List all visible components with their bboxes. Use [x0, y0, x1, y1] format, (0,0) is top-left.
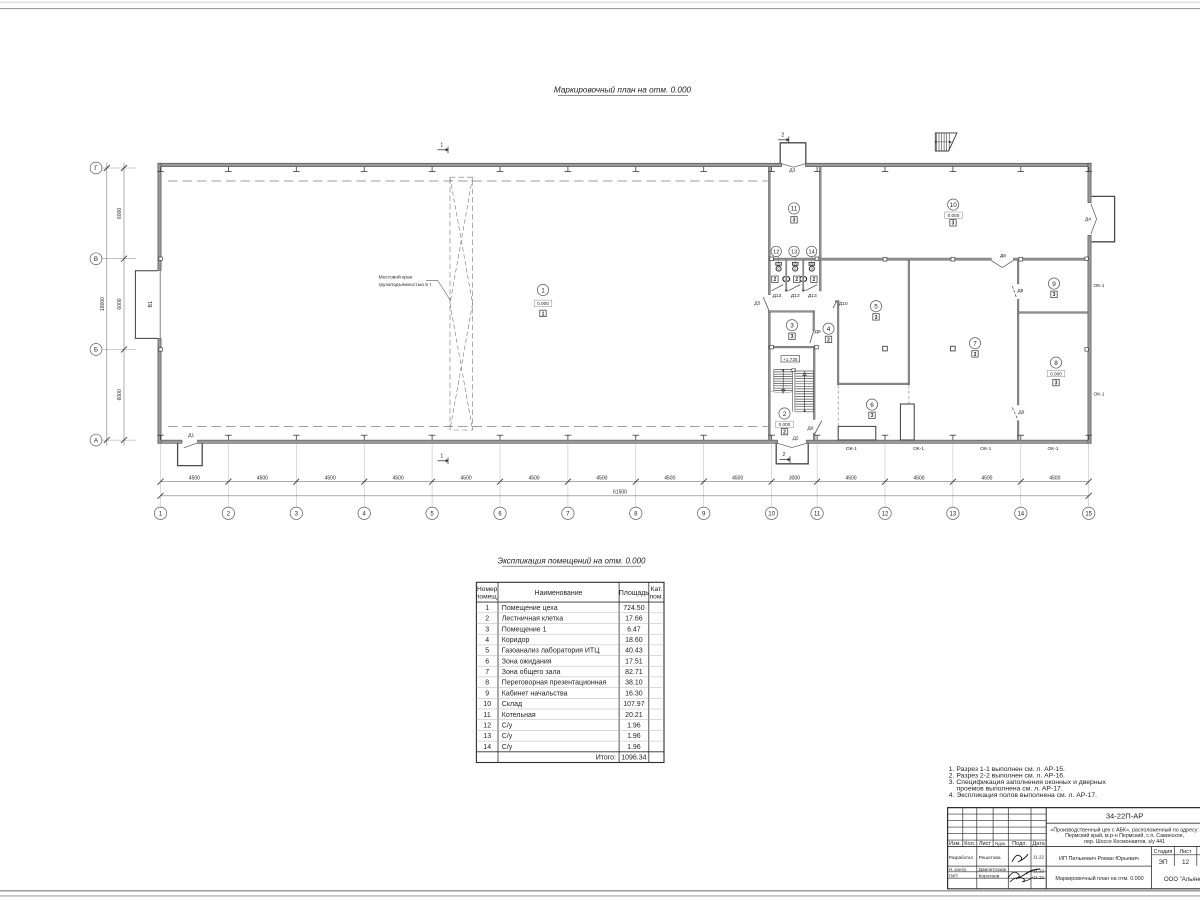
svg-text:20.21: 20.21 — [625, 712, 643, 719]
svg-text:18.60: 18.60 — [625, 637, 643, 644]
svg-text:12: 12 — [1182, 859, 1190, 866]
svg-text:Лестничная клетка: Лестничная клетка — [502, 616, 563, 623]
svg-text:Подп.: Подп. — [1012, 841, 1027, 847]
svg-text:Д9: Д9 — [1018, 410, 1024, 416]
svg-text:11: 11 — [791, 206, 798, 213]
svg-text:1: 1 — [485, 605, 489, 612]
svg-text:3: 3 — [1053, 292, 1056, 298]
svg-text:Площадь: Площадь — [619, 590, 649, 597]
svg-text:С/у: С/у — [502, 733, 513, 740]
svg-text:ОК-1: ОК-1 — [980, 446, 991, 452]
svg-text:3: 3 — [875, 315, 878, 321]
svg-text:Маркировочный план на отм. 0.0: Маркировочный план на отм. 0.000 — [1055, 875, 1143, 882]
svg-text:3: 3 — [790, 323, 794, 330]
svg-text:1.96: 1.96 — [627, 733, 641, 740]
svg-text:2: 2 — [781, 132, 784, 138]
svg-text:Кат.: Кат. — [651, 586, 663, 593]
svg-text:Маркировочный план на отм. 0.: Маркировочный план на отм. 0.000 — [554, 86, 692, 95]
svg-text:61500: 61500 — [613, 490, 627, 496]
svg-text:Кабинет начальства: Кабинет начальства — [502, 689, 568, 697]
svg-text:ОК-1: ОК-1 — [1047, 446, 1058, 452]
svg-text:Д1: Д1 — [188, 432, 194, 438]
svg-text:12: 12 — [882, 512, 889, 518]
svg-text:Давлетгазов: Давлетгазов — [979, 867, 1007, 873]
svg-text:Nдок.: Nдок. — [995, 841, 1006, 846]
svg-text:помещ.: помещ. — [476, 593, 499, 600]
svg-text:14: 14 — [483, 744, 491, 751]
svg-text:С/у: С/у — [502, 723, 513, 730]
svg-text:8: 8 — [1054, 360, 1058, 367]
svg-text:4500: 4500 — [1049, 476, 1060, 482]
svg-text:2: 2 — [783, 430, 786, 436]
svg-text:6: 6 — [485, 658, 489, 665]
svg-text:Д6: Д6 — [807, 425, 813, 431]
svg-text:Мостовой кран: Мостовой кран — [379, 274, 413, 281]
svg-text:Помещение цеха: Помещение цеха — [502, 605, 558, 612]
svg-text:1.96: 1.96 — [627, 744, 641, 751]
svg-text:Разработал: Разработал — [949, 855, 974, 860]
svg-text:Б: Б — [94, 347, 98, 354]
svg-text:Склад: Склад — [502, 701, 522, 708]
svg-text:Зона общего зала: Зона общего зала — [502, 668, 561, 676]
svg-text:724.50: 724.50 — [623, 605, 645, 612]
svg-text:1096.34: 1096.34 — [621, 755, 646, 762]
svg-text:16.30: 16.30 — [625, 690, 643, 697]
svg-text:3: 3 — [952, 221, 955, 227]
svg-text:82.71: 82.71 — [625, 669, 643, 676]
svg-text:Д13: Д13 — [808, 293, 817, 299]
svg-text:0.000: 0.000 — [948, 213, 960, 218]
svg-text:18000: 18000 — [100, 297, 106, 311]
svg-text:Кол.: Кол. — [964, 841, 976, 847]
svg-text:11.22: 11.22 — [1033, 875, 1044, 880]
svg-text:ОК-1: ОК-1 — [1093, 391, 1104, 397]
svg-text:2: 2 — [795, 277, 798, 283]
svg-text:4500: 4500 — [528, 476, 539, 482]
svg-text:8: 8 — [485, 680, 489, 687]
svg-text:5: 5 — [874, 304, 878, 311]
svg-text:2: 2 — [774, 277, 777, 283]
svg-text:3: 3 — [871, 413, 874, 419]
svg-text:Д13: Д13 — [791, 293, 800, 299]
svg-text:7: 7 — [973, 341, 977, 348]
svg-text:4500: 4500 — [664, 476, 675, 482]
svg-text:9: 9 — [1052, 281, 1056, 288]
svg-text:4. Экспликация полов выполнена: 4. Экспликация полов выполнена см. л. АР… — [949, 792, 1097, 799]
svg-text:4500: 4500 — [461, 476, 472, 482]
svg-text:Итого:: Итого: — [596, 755, 616, 762]
svg-text:4: 4 — [827, 326, 831, 333]
svg-text:4: 4 — [485, 637, 489, 644]
svg-text:14: 14 — [1017, 512, 1024, 518]
svg-text:0.000: 0.000 — [537, 301, 549, 306]
svg-text:Коридор: Коридор — [502, 637, 530, 644]
svg-text:13: 13 — [791, 249, 797, 255]
svg-text:Д4: Д4 — [1085, 216, 1091, 222]
svg-text:Лист: Лист — [979, 841, 992, 847]
svg-text:7: 7 — [485, 669, 489, 676]
svg-text:ЭП: ЭП — [1158, 859, 1168, 866]
svg-text:ОК-1: ОК-1 — [1093, 283, 1104, 289]
svg-text:1: 1 — [541, 287, 545, 294]
svg-text:2: 2 — [827, 337, 830, 343]
svg-text:Номер: Номер — [477, 586, 498, 593]
svg-text:Изм.: Изм. — [949, 841, 961, 847]
svg-text:6000: 6000 — [117, 298, 123, 309]
svg-text:Д5: Д5 — [754, 300, 760, 306]
svg-text:15: 15 — [1085, 512, 1092, 518]
svg-text:Решетова: Решетова — [979, 855, 1001, 861]
svg-text:ИП Пилькевич Роман Юрьевич: ИП Пилькевич Роман Юрьевич — [1059, 856, 1139, 862]
svg-text:Лист: Лист — [1180, 849, 1192, 855]
svg-text:4500: 4500 — [596, 476, 607, 482]
svg-text:Н. контр.: Н. контр. — [949, 867, 968, 872]
svg-text:Помещение 1: Помещение 1 — [502, 626, 547, 633]
svg-text:3: 3 — [485, 626, 489, 633]
svg-text:Газоанализ лаборатория ИТЦ: Газоанализ лаборатория ИТЦ — [502, 647, 600, 655]
svg-text:Коротаев: Коротаев — [979, 874, 1000, 880]
svg-text:5: 5 — [485, 648, 489, 655]
svg-text:0.000: 0.000 — [1050, 371, 1062, 376]
svg-text:Зона ожидания: Зона ожидания — [502, 658, 552, 665]
svg-text:Котельная: Котельная — [502, 712, 536, 719]
svg-text:3000: 3000 — [789, 476, 800, 482]
svg-text:2: 2 — [783, 452, 786, 458]
svg-text:3: 3 — [793, 218, 796, 224]
svg-text:4500: 4500 — [189, 476, 200, 482]
svg-text:Д2: Д2 — [793, 435, 799, 441]
svg-text:Д13: Д13 — [773, 293, 782, 299]
svg-text:11.22: 11.22 — [1033, 855, 1044, 860]
svg-text:4500: 4500 — [325, 476, 336, 482]
svg-text:3: 3 — [974, 352, 977, 358]
svg-text:ООО "Альянс": ООО "Альянс" — [1164, 877, 1200, 883]
svg-text:1: 1 — [440, 453, 443, 459]
svg-text:17.51: 17.51 — [625, 658, 643, 665]
svg-text:6000: 6000 — [117, 389, 123, 400]
svg-text:2: 2 — [783, 411, 787, 418]
svg-text:Д9: Д9 — [1017, 288, 1023, 294]
svg-text:38.10: 38.10 — [625, 680, 643, 687]
svg-text:С/у: С/у — [502, 744, 513, 751]
svg-text:14: 14 — [808, 249, 814, 255]
svg-text:пом.: пом. — [650, 593, 664, 600]
svg-text:12: 12 — [773, 249, 779, 255]
svg-text:Переговорная презентационная: Переговорная презентационная — [502, 680, 607, 687]
svg-text:11: 11 — [484, 712, 491, 719]
svg-text:6.47: 6.47 — [627, 626, 641, 633]
svg-text:грузоподъемностью 5 т: грузоподъемностью 5 т — [379, 282, 433, 288]
svg-text:3: 3 — [1055, 381, 1058, 387]
svg-text:4500: 4500 — [981, 476, 992, 482]
svg-text:6: 6 — [870, 402, 874, 409]
svg-text:1: 1 — [440, 142, 443, 148]
svg-text:11: 11 — [814, 512, 821, 518]
svg-text:Дата: Дата — [1032, 841, 1045, 847]
svg-text:Экспликация помещений на отм.: Экспликация помещений на отм. 0.000 — [498, 556, 647, 565]
svg-text:40.43: 40.43 — [625, 648, 643, 655]
svg-text:В1: В1 — [148, 301, 154, 308]
svg-text:4500: 4500 — [913, 476, 924, 482]
svg-text:ГИП: ГИП — [949, 874, 958, 879]
svg-text:10: 10 — [950, 202, 958, 209]
svg-text:4500: 4500 — [845, 476, 856, 482]
svg-text:4500: 4500 — [393, 476, 404, 482]
svg-text:Стадия: Стадия — [1154, 849, 1173, 855]
svg-text:4500: 4500 — [732, 476, 743, 482]
svg-text:В: В — [94, 256, 98, 263]
svg-text:Наименование: Наименование — [535, 590, 583, 597]
svg-text:3: 3 — [791, 334, 794, 340]
svg-text:2: 2 — [485, 616, 489, 623]
svg-text:+1.725: +1.725 — [783, 357, 798, 362]
svg-text:1.96: 1.96 — [627, 723, 641, 730]
svg-text:10: 10 — [483, 701, 491, 708]
svg-text:Д3: Д3 — [789, 167, 795, 173]
svg-text:6000: 6000 — [117, 208, 123, 219]
svg-text:4500: 4500 — [257, 476, 268, 482]
svg-text:13: 13 — [483, 733, 491, 740]
svg-text:ОК-1: ОК-1 — [913, 446, 924, 452]
svg-text:Д8: Д8 — [1000, 253, 1006, 259]
svg-text:10: 10 — [768, 512, 775, 518]
svg-text:ОК-1: ОК-1 — [846, 446, 857, 452]
svg-text:9: 9 — [485, 690, 489, 697]
svg-text:13: 13 — [950, 512, 957, 518]
svg-text:2: 2 — [813, 277, 816, 283]
svg-text:1: 1 — [542, 311, 545, 317]
svg-text:34-22П-АР: 34-22П-АР — [1106, 811, 1144, 820]
svg-text:Д9: Д9 — [815, 329, 821, 335]
svg-text:12: 12 — [483, 723, 491, 730]
svg-text:107.97: 107.97 — [623, 701, 645, 708]
svg-text:17.66: 17.66 — [625, 616, 643, 623]
svg-text:Д10: Д10 — [839, 301, 848, 307]
svg-text:0.000: 0.000 — [779, 422, 791, 427]
svg-text:пер. Шоссе Космонавтов, з/у 44: пер. Шоссе Космонавтов, з/у 441 — [1084, 839, 1165, 845]
